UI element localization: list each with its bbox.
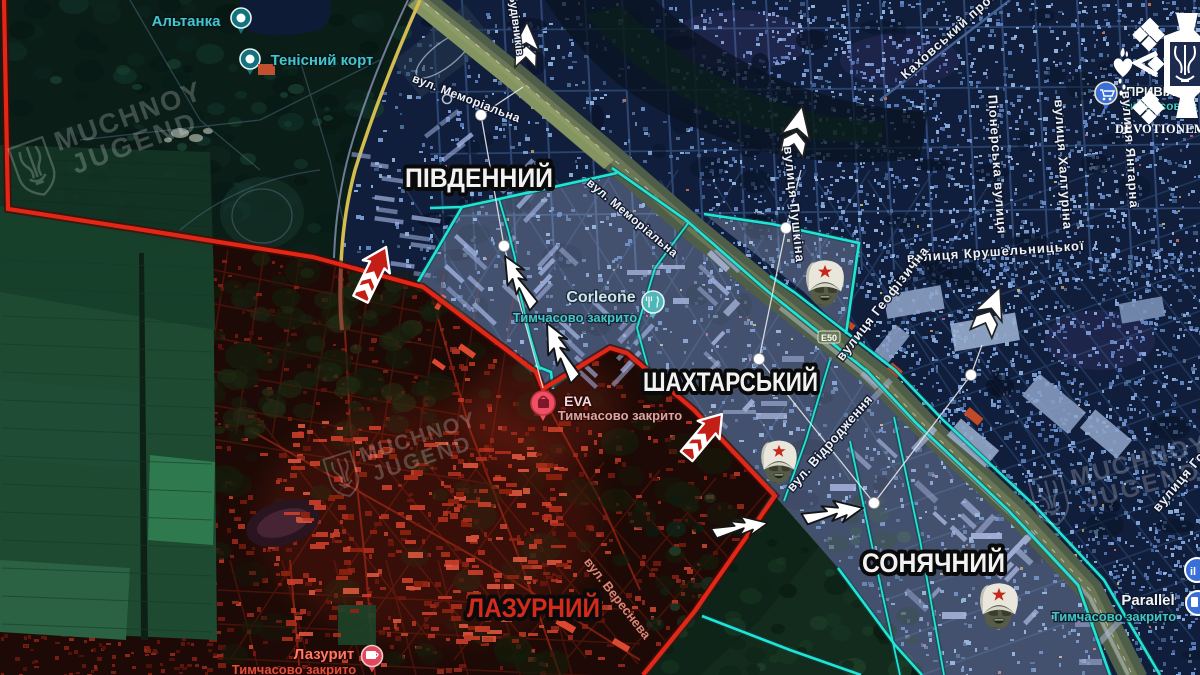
svg-text:E50: E50	[821, 333, 837, 343]
svg-text:DEVOTIONEM A: DEVOTIONEM A	[1115, 122, 1200, 136]
svg-text:Альтанка: Альтанка	[152, 13, 222, 30]
svg-text:Тенісний корт: Тенісний корт	[271, 52, 374, 69]
svg-text:EVA: EVA	[564, 393, 592, 409]
svg-text:Corleone: Corleone	[566, 289, 635, 306]
svg-text:Тимчасово закрито: Тимчасово закрито	[513, 310, 638, 325]
svg-text:СОНЯЧНИЙ: СОНЯЧНИЙ	[862, 548, 1005, 578]
svg-text:Тимчасово закрито: Тимчасово закрито	[558, 408, 683, 423]
svg-text:ЛАЗУРНИЙ: ЛАЗУРНИЙ	[467, 593, 600, 623]
svg-text:Тимчасово закрито: Тимчасово закрито	[232, 662, 357, 675]
svg-text:ПІВДЕННИЙ: ПІВДЕННИЙ	[405, 163, 553, 193]
svg-text:ШАХТАРСЬКИЙ: ШАХТАРСЬКИЙ	[643, 367, 818, 397]
svg-text:Лазурит: Лазурит	[294, 646, 354, 663]
svg-text:il: il	[1190, 566, 1196, 578]
svg-text:Тимчасово закрито: Тимчасово закрито	[1052, 609, 1177, 624]
svg-text:Parallel: Parallel	[1121, 592, 1174, 609]
